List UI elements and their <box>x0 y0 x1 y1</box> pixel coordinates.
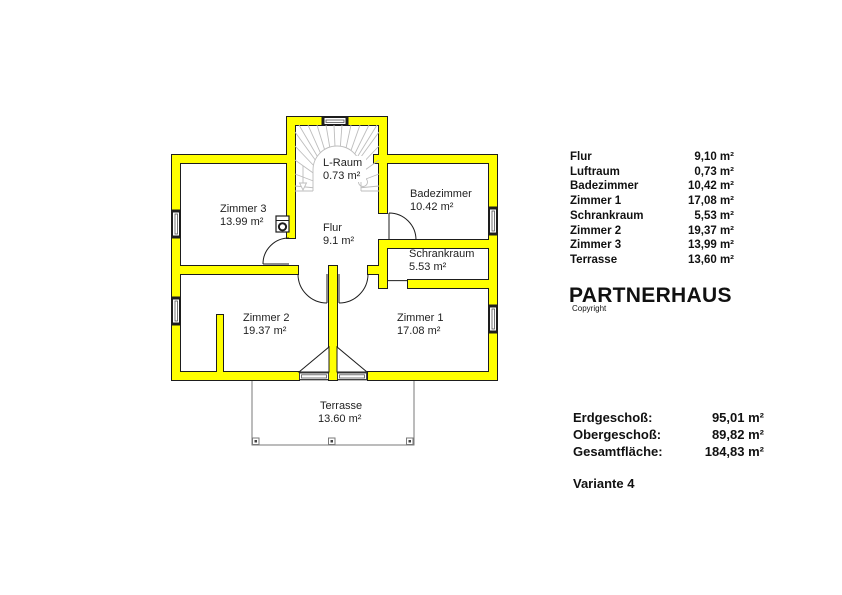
terrace-door-icon <box>337 347 367 380</box>
window-icon <box>173 297 180 325</box>
room-label-schrankraum: Schrankraum <box>409 248 474 260</box>
table-row: Zimmer 313,99 m² <box>570 238 734 253</box>
window-icon <box>173 210 180 238</box>
table-row: Badezimmer10,42 m² <box>570 179 734 194</box>
room-area-zimmer3: 13.99 m² <box>220 216 264 228</box>
room-labels: L-Raum 0.73 m² Zimmer 3 13.99 m² Flur 9.… <box>220 157 474 425</box>
table-row: Zimmer 219,37 m² <box>570 224 734 239</box>
room-area-schrankraum: 5.53 m² <box>409 261 447 273</box>
variant-label: Variante 4 <box>573 476 634 491</box>
room-area-zimmer2: 19.37 m² <box>243 325 287 337</box>
area-summary: Erdgeschoß:95,01 m² Obergeschoß:89,82 m²… <box>573 409 764 461</box>
room-label-zimmer2: Zimmer 2 <box>243 312 289 324</box>
room-area-flur: 9.1 m² <box>323 235 355 247</box>
oven-icon <box>276 216 289 232</box>
room-label-zimmer1: Zimmer 1 <box>397 312 443 324</box>
room-area-terrasse: 13.60 m² <box>318 413 362 425</box>
room-label-badezimmer: Badezimmer <box>410 188 472 200</box>
room-label-flur: Flur <box>323 222 342 234</box>
table-row: Luftraum0,73 m² <box>570 165 734 180</box>
door-icon-badezimmer <box>389 213 416 240</box>
table-row: Schrankraum5,53 m² <box>570 209 734 224</box>
table-row: Erdgeschoß:95,01 m² <box>573 409 764 426</box>
door-icon-zimmer2 <box>298 274 327 303</box>
copyright-label: Copyright <box>572 304 606 313</box>
room-area-table: Flur9,10 m² Luftraum0,73 m² Badezimmer10… <box>570 150 734 268</box>
room-area-zimmer1: 17.08 m² <box>397 325 441 337</box>
room-label-terrasse: Terrasse <box>320 400 362 412</box>
window-icon <box>322 118 348 125</box>
window-icon <box>490 207 497 235</box>
room-label-zimmer3: Zimmer 3 <box>220 203 266 215</box>
terrace-door-icon <box>299 347 329 380</box>
door-icon-zimmer3 <box>263 238 289 264</box>
table-row: Obergeschoß:89,82 m² <box>573 426 764 443</box>
room-label-lraum: L-Raum <box>323 157 362 169</box>
table-row: Gesamtfläche:184,83 m² <box>573 443 764 460</box>
terrace-post-icon <box>253 438 414 445</box>
door-icon-zimmer1 <box>339 274 368 303</box>
room-area-badezimmer: 10.42 m² <box>410 201 454 213</box>
table-row: Flur9,10 m² <box>570 150 734 165</box>
room-area-lraum: 0.73 m² <box>323 170 361 182</box>
table-row: Zimmer 117,08 m² <box>570 194 734 209</box>
table-row: Terrasse13,60 m² <box>570 253 734 268</box>
window-icon <box>490 305 497 333</box>
